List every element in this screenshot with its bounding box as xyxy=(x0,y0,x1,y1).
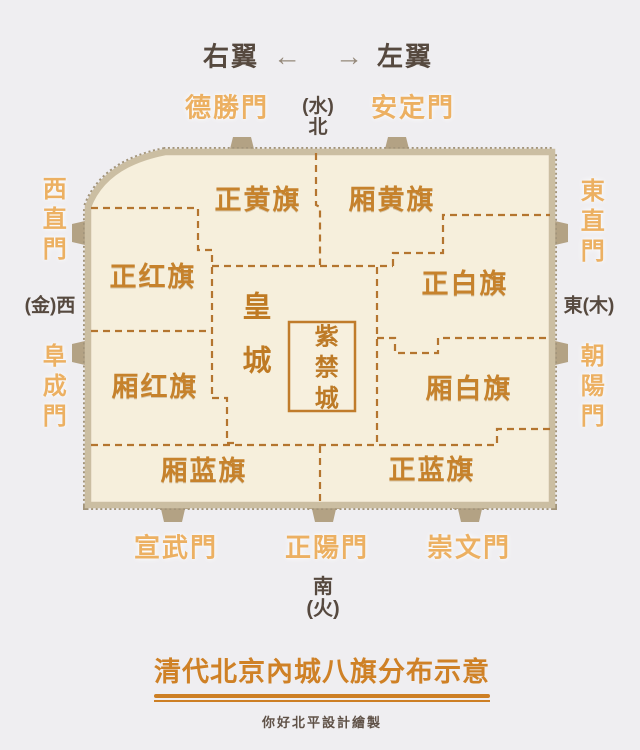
south-element-label: (火) xyxy=(306,598,339,620)
eight-banners-map-infographic: 右翼←→左翼 德勝門 (水) 北 安定門 西直門 (金)西 阜成門 東直門 東(… xyxy=(0,0,640,750)
south-direction-label: 南 (火) xyxy=(306,576,339,620)
gate-label-fuchengmen: 阜成門 xyxy=(38,343,64,433)
banner-bordered-red-label: 厢红旗 xyxy=(112,373,199,403)
banner-plain-yellow-label: 正黄旗 xyxy=(215,186,302,216)
north-label: 北 xyxy=(302,117,334,138)
imperial-city-label: 皇城 xyxy=(237,291,269,399)
banner-bordered-white-label: 厢白旗 xyxy=(426,375,513,405)
banner-plain-red-label: 正红旗 xyxy=(110,263,197,293)
gate-label-dongzhimen: 東直門 xyxy=(576,178,602,268)
left-wing-label: 左翼 xyxy=(377,43,433,72)
banner-plain-blue-label: 正蓝旗 xyxy=(389,456,476,486)
gate-label-chongwenmen: 崇文門 xyxy=(427,534,511,563)
south-label: 南 xyxy=(306,576,339,598)
forbidden-city-label: 紫禁城 xyxy=(310,324,336,417)
north-direction-label: (水) 北 xyxy=(302,96,334,138)
gate-label-deshengmen: 德勝門 xyxy=(185,94,269,123)
credit-line: 你好北平設計繪製 xyxy=(154,712,490,731)
left-arrow-icon: ← xyxy=(273,42,301,73)
banner-plain-white-label: 正白旗 xyxy=(422,270,509,300)
gate-label-xuanwumen: 宣武門 xyxy=(134,534,218,563)
banner-bordered-blue-label: 厢蓝旗 xyxy=(161,457,248,487)
gate-label-zhengyangmen: 正陽門 xyxy=(285,534,369,563)
gate-label-andingmen: 安定門 xyxy=(371,94,455,123)
title-underline-thick xyxy=(154,694,490,698)
north-element-label: (水) xyxy=(302,96,334,117)
gate-label-xizhimen: 西直門 xyxy=(38,176,64,266)
footer: 清代北京內城八旗分布示意 你好北平設計繪製 xyxy=(154,650,490,731)
wing-direction-legend: 右翼←→左翼 xyxy=(203,42,433,73)
gate-label-chaoyangmen: 朝陽門 xyxy=(576,343,602,433)
east-direction-label: 東(木) xyxy=(564,297,615,318)
title-underline-thin xyxy=(154,700,490,702)
right-arrow-icon: → xyxy=(335,42,363,73)
banner-bordered-yellow-label: 厢黄旗 xyxy=(349,186,436,216)
right-wing-label: 右翼 xyxy=(203,43,259,72)
page-title: 清代北京內城八旗分布示意 xyxy=(154,650,490,689)
west-direction-label: (金)西 xyxy=(25,297,76,318)
